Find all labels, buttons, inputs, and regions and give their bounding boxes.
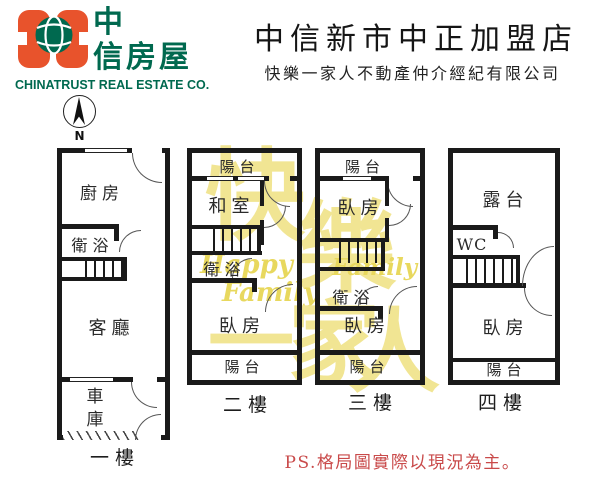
- room-label-tatami: 和室: [195, 194, 263, 216]
- door-arc: [498, 232, 514, 248]
- room-label-balcony: 陽台: [320, 156, 405, 176]
- room-label-bedroom: 臥房: [202, 314, 277, 336]
- wall: [187, 350, 302, 355]
- wall: [315, 380, 425, 385]
- wall: [315, 267, 385, 271]
- room-label-bath: 衛浴: [61, 234, 119, 254]
- floor-label-3f: 三樓: [320, 390, 420, 412]
- room-label-balcony: 陽台: [197, 356, 287, 376]
- wall: [187, 176, 207, 181]
- wall: [113, 377, 133, 382]
- wall: [385, 218, 389, 242]
- flyer-page: 中 信房屋 CHINATRUST REAL ESTATE CO. 中信新市中正加…: [0, 0, 600, 479]
- wall: [448, 225, 498, 230]
- wall: [252, 278, 257, 292]
- store-subtitle: 快樂一家人不動產仲介經紀有限公司: [240, 60, 585, 84]
- floor-label-4f: 四樓: [450, 390, 550, 412]
- company-name-en: CHINATRUST REAL ESTATE CO.: [15, 78, 210, 92]
- room-label-bedroom: 臥房: [323, 196, 393, 218]
- stairs: [85, 261, 123, 277]
- wall: [57, 277, 127, 281]
- door-arc: [264, 181, 290, 207]
- wall: [448, 148, 560, 153]
- wall: [187, 148, 302, 153]
- room-label-balcony: 陽台: [323, 356, 411, 376]
- wall: [187, 380, 302, 385]
- north-compass-icon: [63, 95, 96, 128]
- room-label-bedroom: 臥房: [327, 314, 402, 336]
- floor-label-1f: 一樓: [62, 445, 162, 467]
- door-arc: [389, 286, 417, 314]
- room-label-bedroom: 臥房: [463, 316, 543, 338]
- brand-name-bottom: 信房屋: [93, 40, 192, 75]
- floorplan-2f: 陽台 和室 衛浴 臥房 陽台: [187, 148, 302, 385]
- globe-icon: [34, 15, 74, 55]
- window: [70, 377, 113, 382]
- north-arrow-icon: [73, 97, 85, 125]
- wall: [161, 435, 170, 440]
- chinatrust-logo: [18, 8, 90, 74]
- window: [238, 176, 264, 181]
- store-title: 中信新市中正加盟店: [238, 14, 588, 58]
- compass-north-label: N: [63, 129, 96, 143]
- brand-name-top: 中: [93, 5, 192, 40]
- room-label-bath: 衛浴: [192, 258, 252, 278]
- wall: [448, 148, 453, 385]
- stairs: [339, 242, 383, 263]
- wall: [315, 148, 425, 153]
- stairs: [213, 229, 257, 251]
- door-arc: [522, 246, 554, 286]
- window: [343, 176, 371, 181]
- window: [85, 148, 127, 153]
- wall: [413, 176, 425, 181]
- door-arc: [135, 414, 161, 440]
- room-label-wc: WC: [452, 234, 492, 254]
- logo-notch-left: [18, 32, 27, 45]
- wall: [165, 148, 170, 440]
- brand-name: 中 信房屋: [93, 5, 192, 75]
- room-label-garage: 車庫: [81, 386, 105, 434]
- floorplan-4f: 露台 WC 臥房 陽台: [448, 148, 560, 385]
- wall: [257, 225, 261, 255]
- room-label-balcony: 陽台: [192, 156, 282, 176]
- wall: [516, 255, 520, 283]
- door-arc: [119, 230, 141, 252]
- window: [207, 176, 233, 181]
- room-label-kitchen: 廚房: [62, 180, 137, 202]
- wall: [157, 377, 165, 382]
- door-arc: [265, 284, 293, 312]
- wall: [57, 224, 119, 229]
- logo-notch-right: [79, 32, 88, 45]
- door-arc: [132, 153, 162, 183]
- room-label-terrace: 露台: [463, 188, 543, 210]
- wall: [448, 283, 526, 288]
- floorplan-1f: 廚房 衛浴 客廳 車庫: [57, 148, 170, 440]
- ps-note: PS.格局圖實際以現況為主。: [235, 448, 570, 473]
- door-arc: [524, 288, 552, 316]
- wall: [555, 148, 560, 385]
- floor-label-2f: 二樓: [195, 392, 295, 414]
- wall: [315, 176, 343, 181]
- room-label-living: 客廳: [69, 316, 149, 338]
- room-label-balcony: 陽台: [460, 360, 548, 379]
- wall: [123, 257, 127, 281]
- wall: [315, 350, 425, 355]
- room-label-bath: 衛浴: [320, 286, 382, 306]
- stairs: [466, 259, 516, 283]
- door-arc: [131, 382, 157, 408]
- wall: [448, 380, 560, 385]
- wall: [290, 176, 302, 181]
- wall: [381, 238, 385, 271]
- floorplan-3f: 陽台 臥房 衛浴 臥房 陽台: [315, 148, 425, 385]
- door-arc: [264, 206, 286, 228]
- wall: [57, 377, 70, 382]
- wall: [192, 251, 262, 255]
